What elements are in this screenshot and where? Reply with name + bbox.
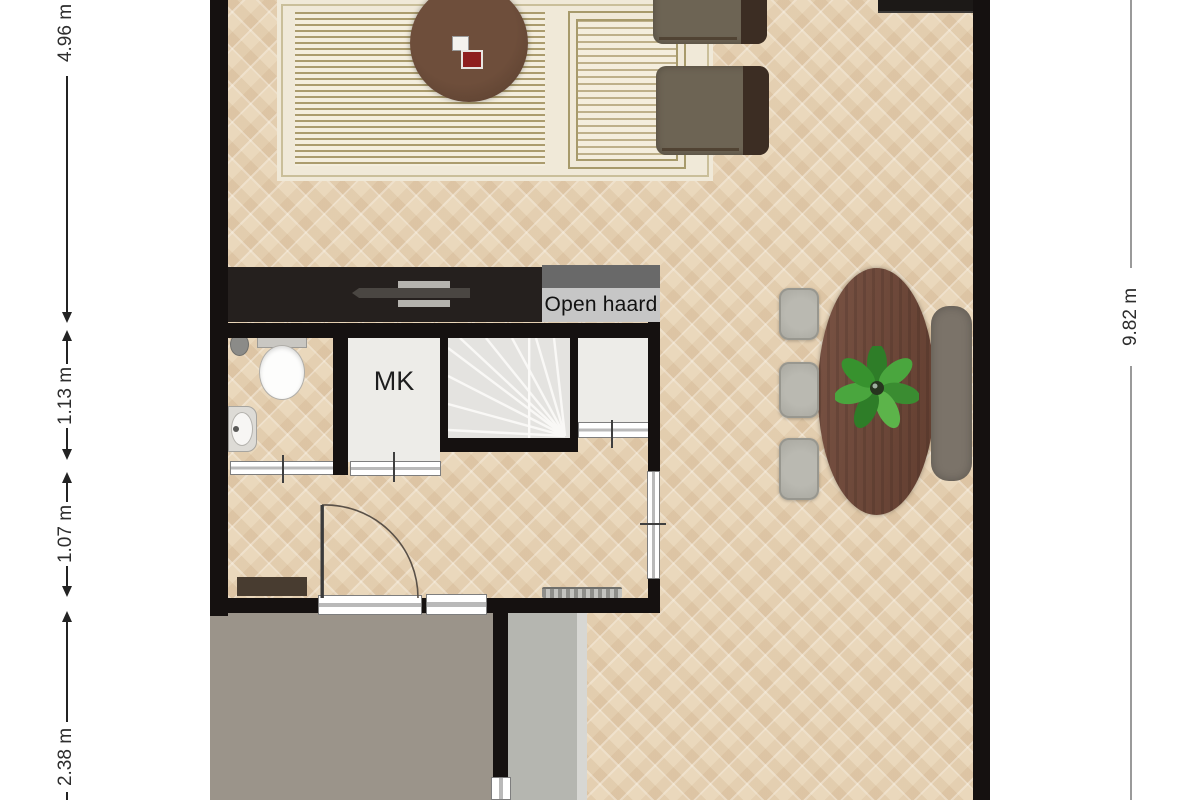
hall-living-door <box>647 471 660 579</box>
wall-hall-right-upper <box>648 322 660 472</box>
armchair-seatline <box>659 37 737 40</box>
armchair-backrest <box>741 0 767 44</box>
coffee-table-book-icon <box>461 50 483 69</box>
armchair <box>656 66 769 155</box>
dining-chair <box>779 288 819 340</box>
staircase <box>448 338 570 438</box>
dining-chair <box>779 438 819 500</box>
wall-left-outer <box>210 0 228 616</box>
coffee-table-tray-icon <box>452 36 469 51</box>
dining-bench <box>931 306 972 481</box>
meter-cupboard-label-text: MK <box>374 366 415 396</box>
dimension-line <box>1130 0 1132 268</box>
tv-mount <box>398 281 450 289</box>
meter-cupboard-door-handle <box>393 452 395 482</box>
doormat <box>237 577 307 596</box>
meter-cupboard-door <box>350 461 441 476</box>
side-window-strip <box>577 613 587 800</box>
storage-closet <box>578 338 650 423</box>
garden-path <box>508 613 577 800</box>
sideboard <box>878 0 975 13</box>
dining-chair <box>779 362 819 418</box>
wall-right-outer <box>973 0 990 800</box>
dimension-line <box>66 428 68 449</box>
hall-living-door-handle <box>640 523 666 525</box>
toilet-door-handle <box>282 455 284 483</box>
meter-cupboard <box>348 338 440 462</box>
wall-terrace-side <box>493 613 508 778</box>
dimension-label: 9.82 m <box>1120 288 1142 346</box>
wall-mk-stairs <box>440 338 448 452</box>
armchair-seatline <box>662 148 739 151</box>
dimension-label: 2.38 m <box>55 728 77 786</box>
fireplace-label-text: Open haard <box>545 293 658 317</box>
dimension-label: 1.07 m <box>55 505 77 563</box>
dimension-arrow-down <box>62 449 72 460</box>
closet-sliding-door <box>578 422 652 438</box>
wall-stairs-closet <box>570 338 578 438</box>
dimension-line <box>1130 366 1132 800</box>
wall-facade-right <box>485 598 660 613</box>
dimension-arrow-up <box>62 611 72 622</box>
meter-cupboard-label: MK <box>348 366 440 397</box>
floor-plan: Open haard MK <box>0 0 1200 800</box>
dimension-line <box>66 483 68 502</box>
facade-window <box>426 594 487 615</box>
closet-door-handle <box>611 420 613 448</box>
faucet-icon <box>233 426 239 432</box>
fireplace-label: Open haard <box>542 288 660 322</box>
armchair-backrest <box>743 66 769 155</box>
dimension-line <box>66 792 68 800</box>
toilet-icon <box>259 345 305 400</box>
dimension-arrow-up <box>62 472 72 483</box>
dimension-line <box>66 566 68 586</box>
dimension-line <box>66 622 68 722</box>
plant-icon <box>835 346 919 430</box>
wall-toilet-mk <box>333 338 348 475</box>
wall-living-divider <box>210 323 660 338</box>
radiator <box>542 587 622 598</box>
dimension-arrow-down <box>62 586 72 597</box>
dimension-label: 4.96 m <box>55 4 77 62</box>
dimension-line <box>66 341 68 364</box>
front-door-swing <box>318 503 424 600</box>
wall-facade-left <box>210 598 322 613</box>
tv-stand <box>398 300 450 307</box>
tv-icon <box>352 288 470 298</box>
terrace-gate-door <box>491 777 511 800</box>
fireplace-flue <box>542 265 660 288</box>
dimension-arrow-up <box>62 330 72 341</box>
dimension-line <box>66 76 68 314</box>
dimension-arrow-down <box>62 312 72 323</box>
armchair <box>653 0 767 44</box>
dimension-label: 1.13 m <box>55 367 77 425</box>
wall-under-stairs <box>440 438 578 452</box>
terrace <box>210 613 493 800</box>
